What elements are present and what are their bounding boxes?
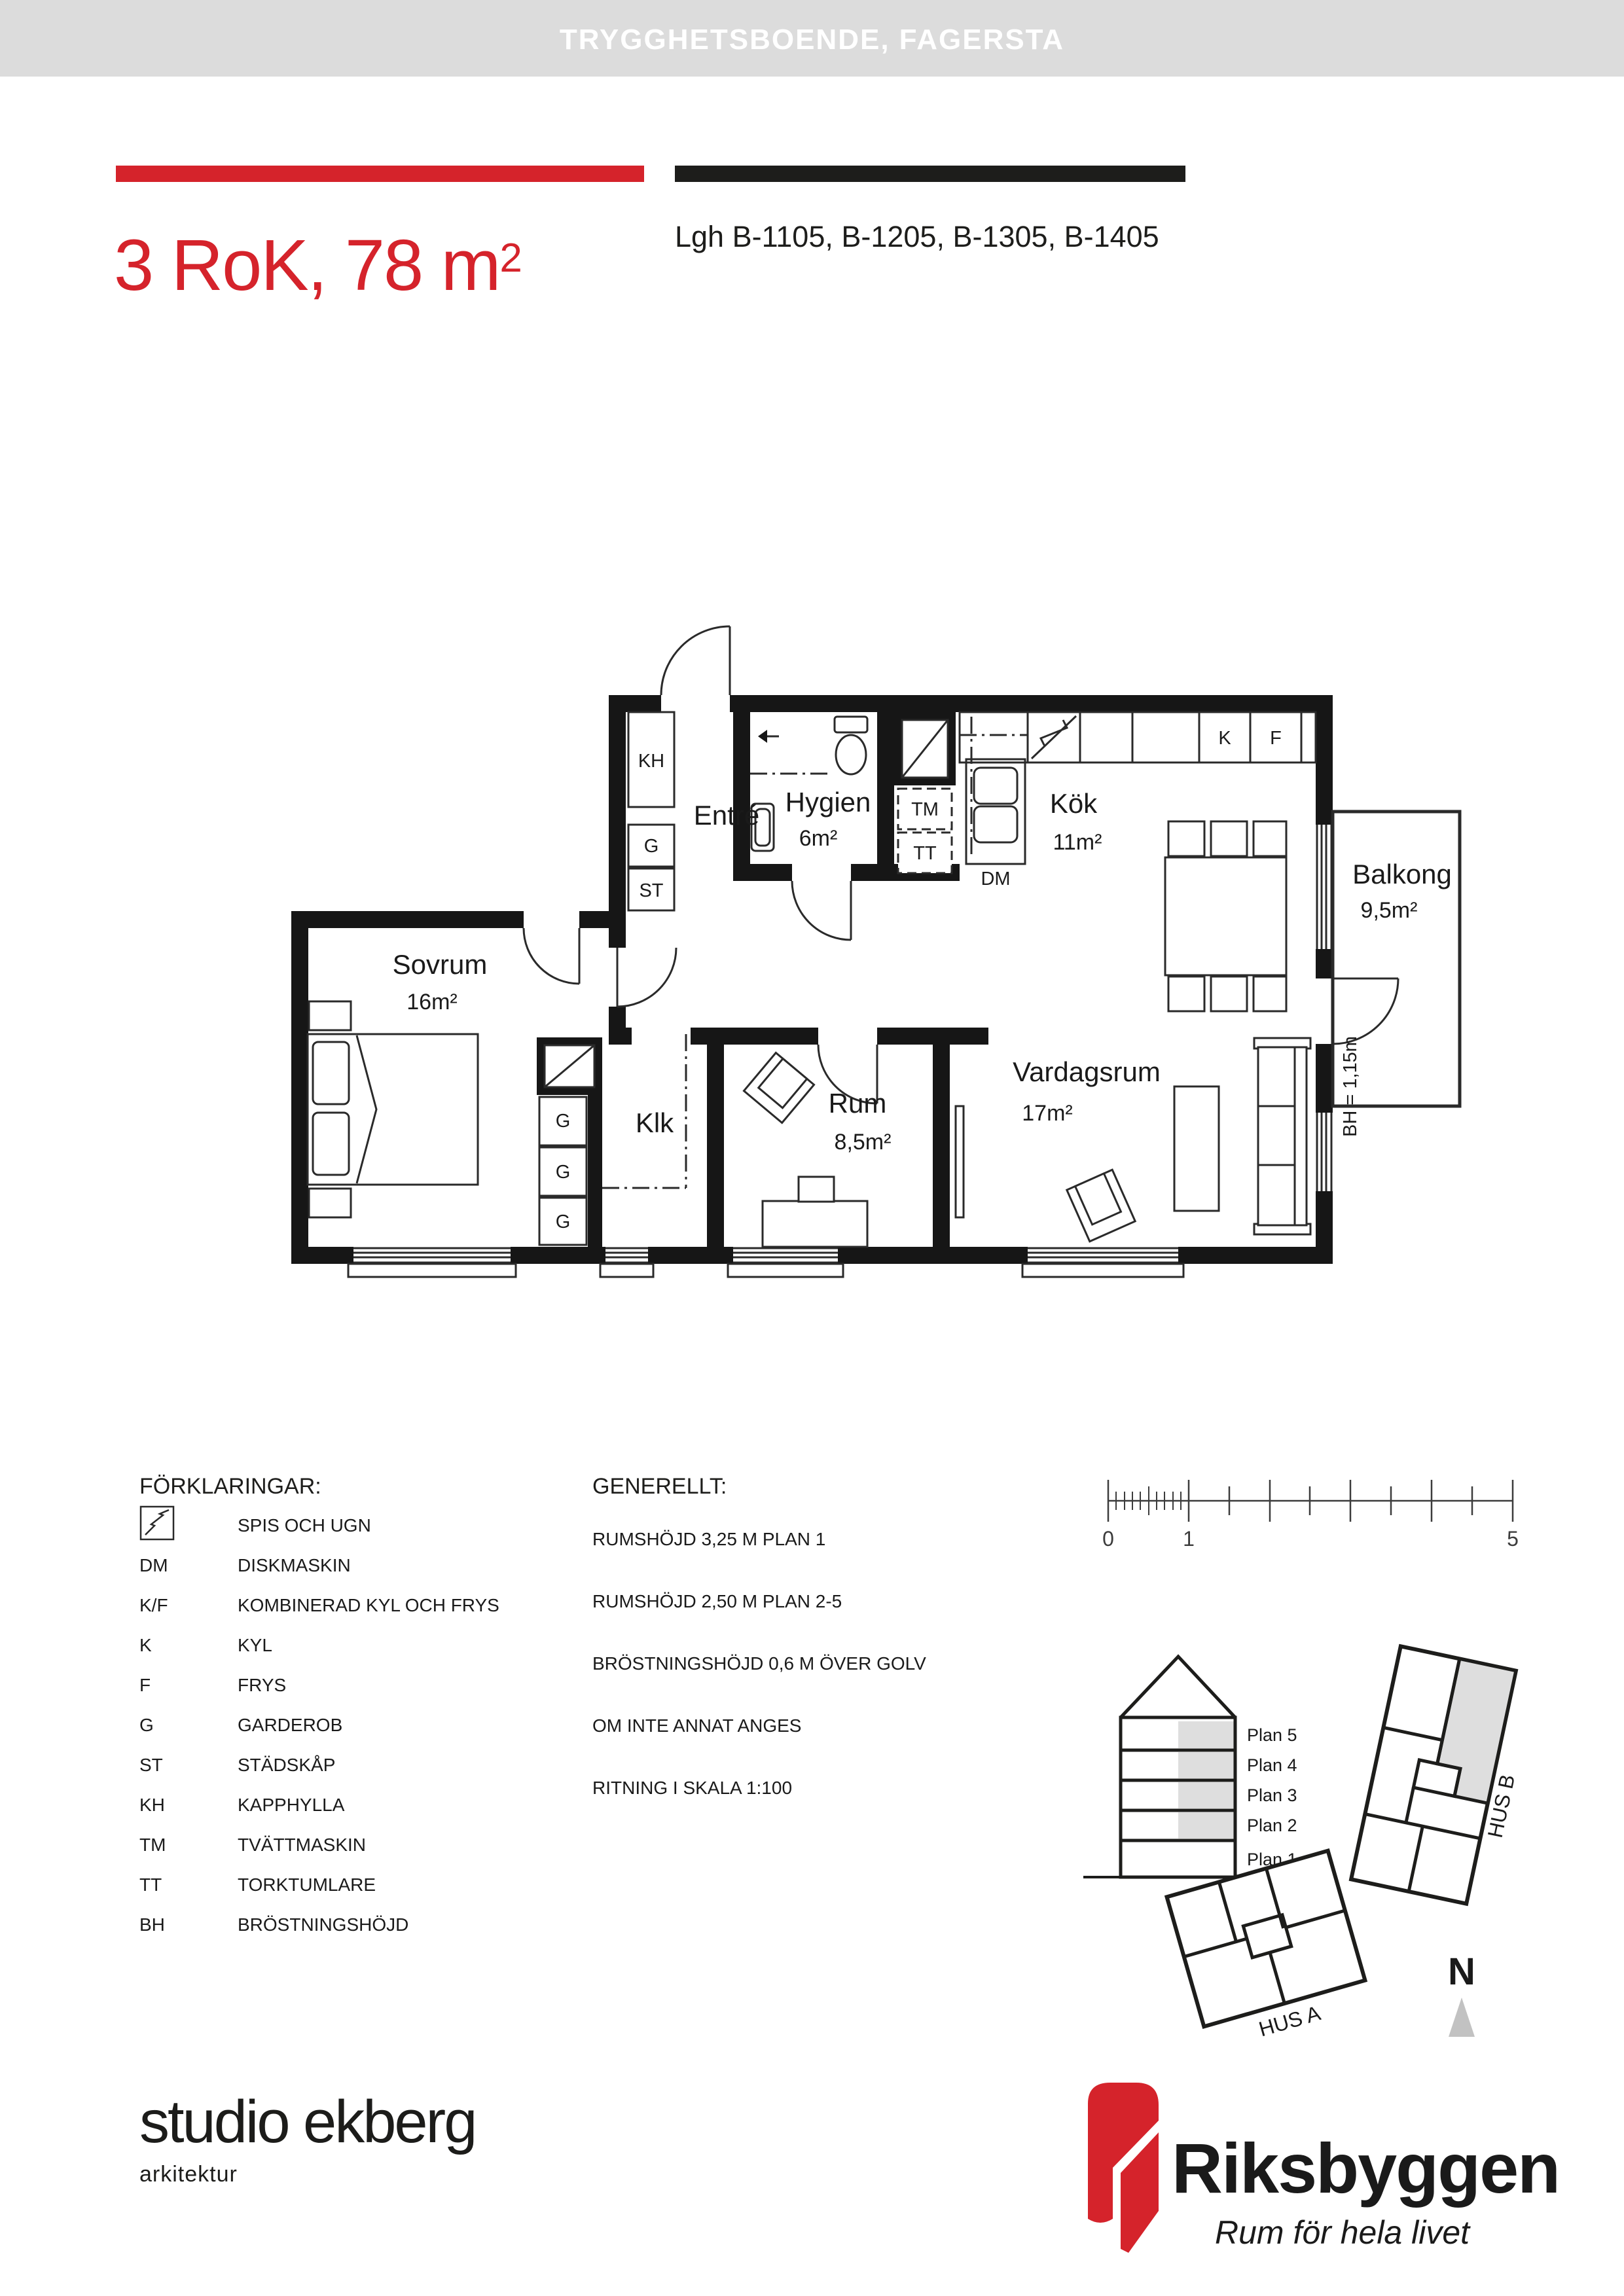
legend-code: TT xyxy=(139,1874,238,1895)
label-plan3: Plan 3 xyxy=(1247,1785,1297,1805)
legend-code: KH xyxy=(139,1795,238,1816)
north-letter: N xyxy=(1448,1950,1475,1993)
bed xyxy=(308,1001,478,1217)
door-swing-icon xyxy=(758,730,767,743)
area-sovrum: 16m² xyxy=(406,990,457,1014)
north-triangle-icon xyxy=(1449,1998,1475,2037)
legend-code: G xyxy=(139,1715,238,1736)
legend-row: G GARDEROB xyxy=(139,1705,545,1745)
legend-row: ST STÄDSKÅP xyxy=(139,1745,545,1785)
stove-icon xyxy=(1032,716,1076,759)
legend-desc: SPIS OCH UGN xyxy=(238,1515,545,1536)
area-kok: 11m² xyxy=(1053,830,1102,855)
legend-row-spis: SPIS OCH UGN xyxy=(139,1505,545,1545)
label-g1: G xyxy=(556,1111,571,1132)
generellt-line: OM INTE ANNAT ANGES xyxy=(592,1715,1051,1736)
legend-section: FÖRKLARINGAR: SPIS OCH UGN DM DISKMASKIN… xyxy=(139,1474,321,1499)
area-hygien: 6m² xyxy=(799,826,838,851)
legend-row: BH BRÖSTNINGSHÖJD xyxy=(139,1905,545,1945)
generellt-title: GENERELLT: xyxy=(592,1474,727,1499)
legend-desc: KYL xyxy=(238,1635,545,1656)
legend-desc: DISKMASKIN xyxy=(238,1555,545,1576)
site-hus-a: HUS A xyxy=(1167,1851,1374,2056)
label-g2: G xyxy=(556,1162,571,1183)
scale-five: 5 xyxy=(1507,1527,1519,1551)
legend-desc: KAPPHYLLA xyxy=(238,1795,545,1816)
label-st: ST xyxy=(639,880,663,901)
generellt-section: GENERELLT: RUMSHÖJD 3,25 M PLAN 1 RUMSHÖ… xyxy=(592,1474,727,1499)
legend-row: DM DISKMASKIN xyxy=(139,1545,545,1585)
studio-name: studio ekberg xyxy=(139,2088,475,2157)
legend-desc: GARDEROB xyxy=(238,1715,545,1736)
label-sovrum: Sovrum xyxy=(393,949,488,980)
generellt-lines: RUMSHÖJD 3,25 M PLAN 1 RUMSHÖJD 2,50 M P… xyxy=(592,1529,1051,1840)
legend-code: TM xyxy=(139,1835,238,1856)
scale-bar: 0 1 5 xyxy=(1102,1480,1519,1551)
riksbyggen-logo: Riksbyggen Rum för hela livet xyxy=(1088,2083,1559,2253)
riksbyggen-tagline: Rum för hela livet xyxy=(1215,2214,1471,2251)
studio-logo: studio ekberg arkitektur xyxy=(139,2088,475,2187)
label-bh-note: BH = 1,15m xyxy=(1340,1036,1361,1137)
scale-zero: 0 xyxy=(1102,1527,1114,1551)
legend-title: FÖRKLARINGAR: xyxy=(139,1474,321,1499)
north-arrow: N xyxy=(1448,1950,1475,2037)
scale-one: 1 xyxy=(1183,1527,1195,1551)
label-vardagsrum: Vardagsrum xyxy=(1013,1056,1161,1087)
legend-desc: BRÖSTNINGSHÖJD xyxy=(238,1914,545,1935)
legend-code: K/F xyxy=(139,1595,238,1616)
legend-row: KH KAPPHYLLA xyxy=(139,1785,545,1825)
dining-set xyxy=(1165,821,1286,1011)
label-entre: Entré xyxy=(694,800,759,831)
area-balkong: 9,5m² xyxy=(1361,898,1418,923)
generellt-line: RITNING I SKALA 1:100 xyxy=(592,1778,1051,1799)
legend-desc: TVÄTTMASKIN xyxy=(238,1835,545,1856)
site-hus-b: HUS B xyxy=(1351,1646,1541,1909)
legend-code: F xyxy=(139,1675,238,1696)
legend-desc: KOMBINERAD KYL OCH FRYS xyxy=(238,1595,545,1616)
generellt-line: BRÖSTNINGSHÖJD 0,6 M ÖVER GOLV xyxy=(592,1653,1051,1674)
label-kok: Kök xyxy=(1050,788,1098,819)
legend-desc: FRYS xyxy=(238,1675,545,1696)
label-balkong: Balkong xyxy=(1352,859,1452,889)
label-g-entre: G xyxy=(644,836,659,857)
label-tm: TM xyxy=(911,799,939,820)
label-rum: Rum xyxy=(829,1088,887,1119)
label-kh: KH xyxy=(638,751,664,772)
label-g3: G xyxy=(556,1211,571,1232)
riksbyggen-mark-icon xyxy=(1088,2083,1159,2253)
legend-desc: TORKTUMLARE xyxy=(238,1874,545,1895)
studio-subtitle: arkitektur xyxy=(139,2162,475,2187)
building-elevation: Plan 5 Plan 4 Plan 3 Plan 2 Plan 1 xyxy=(1083,1657,1297,1877)
label-dm: DM xyxy=(981,869,1010,889)
legend-code: DM xyxy=(139,1555,238,1576)
page: TRYGGHETSBOENDE, FAGERSTA 3 RoK, 78 m2 L… xyxy=(0,0,1624,2296)
label-plan5: Plan 5 xyxy=(1247,1725,1297,1745)
riksbyggen-wordmark: Riksbyggen xyxy=(1172,2128,1559,2208)
area-rum: 8,5m² xyxy=(835,1130,892,1155)
label-plan4: Plan 4 xyxy=(1247,1755,1297,1775)
floor-plan: Entré Hygien 6m² Kök 11m² Balkong 9,5m² … xyxy=(291,626,1460,1277)
area-vardagsrum: 17m² xyxy=(1022,1101,1072,1126)
label-f: F xyxy=(1270,728,1282,749)
legend-row: K/F KOMBINERAD KYL OCH FRYS xyxy=(139,1585,545,1625)
legend-desc: STÄDSKÅP xyxy=(238,1755,545,1776)
label-k: K xyxy=(1218,728,1231,749)
spis-ugn-icon xyxy=(139,1505,238,1545)
legend-code: K xyxy=(139,1635,238,1656)
label-hygien: Hygien xyxy=(785,787,871,817)
label-klk: Klk xyxy=(636,1107,674,1138)
legend-row: TM TVÄTTMASKIN xyxy=(139,1825,545,1865)
label-plan2: Plan 2 xyxy=(1247,1816,1297,1835)
vector-layer: Entré Hygien 6m² Kök 11m² Balkong 9,5m² … xyxy=(0,0,1624,2296)
legend-rows: SPIS OCH UGN DM DISKMASKIN K/F KOMBINERA… xyxy=(139,1505,545,1945)
legend-code: BH xyxy=(139,1914,238,1935)
generellt-line: RUMSHÖJD 3,25 M PLAN 1 xyxy=(592,1529,1051,1550)
label-tt: TT xyxy=(913,843,937,864)
generellt-line: RUMSHÖJD 2,50 M PLAN 2-5 xyxy=(592,1591,1051,1612)
legend-row: F FRYS xyxy=(139,1665,545,1705)
legend-code: ST xyxy=(139,1755,238,1776)
legend-row: K KYL xyxy=(139,1625,545,1665)
legend-row: TT TORKTUMLARE xyxy=(139,1865,545,1905)
